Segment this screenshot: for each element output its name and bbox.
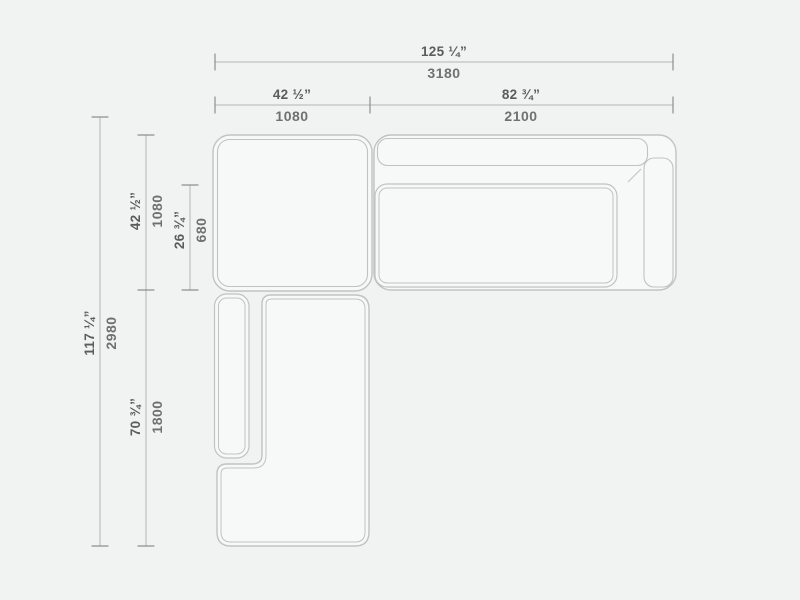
dim-left-module-width-inches: 42 ½” bbox=[273, 88, 311, 102]
dim-total-depth-inches: 117 ¼” bbox=[83, 310, 97, 355]
dim-seat-depth-inches: 26 ¾” bbox=[173, 211, 187, 249]
drawing-svg bbox=[0, 0, 800, 600]
dim-label-chaise-depth: 70 ¾” 1800 bbox=[129, 398, 164, 436]
sofa-armrest bbox=[644, 158, 673, 287]
dim-total-width-mm: 3180 bbox=[427, 65, 460, 79]
dim-right-module-width-inches: 82 ¾” bbox=[502, 88, 540, 102]
dim-total-width-inches: 125 ¼” bbox=[421, 45, 467, 59]
dim-seat-depth-mm: 680 bbox=[193, 218, 207, 243]
dim-label-total-width: 125 ¼” 3180 bbox=[421, 45, 467, 80]
sofa-dimension-drawing: 125 ¼” 3180 42 ½” 1080 82 ¾” 2100 117 ¼”… bbox=[0, 0, 800, 600]
chaise-armrest-inner bbox=[219, 298, 246, 454]
dim-right-module-width-mm: 2100 bbox=[504, 108, 537, 122]
corner-module-seat bbox=[218, 140, 368, 287]
dim-label-total-depth: 117 ¼” 2980 bbox=[83, 310, 118, 355]
dim-label-seat-depth: 26 ¾” 680 bbox=[173, 211, 208, 249]
sofa-plan bbox=[213, 135, 676, 546]
dimension-ticks bbox=[92, 54, 673, 546]
dim-chaise-depth-inches: 70 ¾” bbox=[129, 398, 143, 436]
dim-label-left-module-depth: 42 ½” 1080 bbox=[129, 192, 164, 230]
dim-left-module-width-mm: 1080 bbox=[275, 108, 308, 122]
sofa-seat-inner bbox=[379, 188, 613, 283]
dim-left-module-depth-inches: 42 ½” bbox=[129, 192, 143, 230]
dim-label-left-module-width: 42 ½” 1080 bbox=[273, 88, 311, 123]
dim-chaise-depth-mm: 1800 bbox=[149, 400, 163, 433]
dim-total-depth-mm: 2980 bbox=[103, 316, 117, 349]
dim-left-module-depth-mm: 1080 bbox=[149, 194, 163, 227]
dim-label-right-module-width: 82 ¾” 2100 bbox=[502, 88, 540, 123]
sofa-backrest bbox=[378, 139, 648, 166]
